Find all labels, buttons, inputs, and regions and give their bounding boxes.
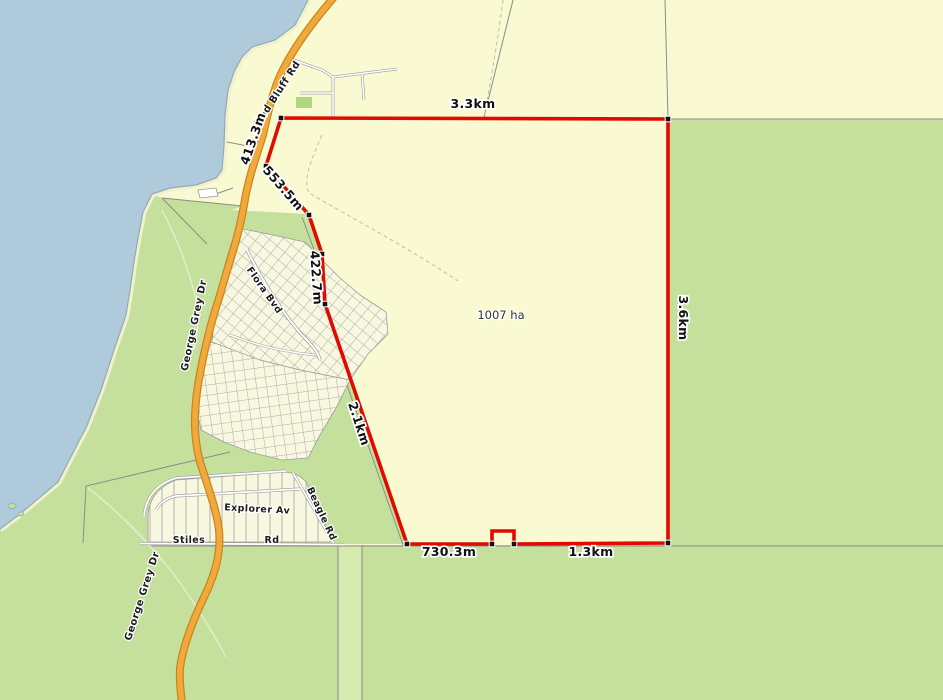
vertex-handle[interactable] bbox=[511, 541, 517, 547]
vertex-handle[interactable] bbox=[306, 212, 312, 218]
vertex-handle[interactable] bbox=[278, 115, 284, 121]
measurement-right-edge: 3.6km bbox=[676, 296, 691, 341]
islet bbox=[18, 512, 24, 516]
map-viewport[interactable]: Red Bluff Rd George Grey Dr George Grey … bbox=[0, 0, 943, 700]
measurement-bottom-right: 1.3km bbox=[569, 544, 614, 559]
measurement-bottom-left: 730.3m bbox=[422, 544, 476, 559]
parcel-area-label: 1007 ha bbox=[477, 308, 524, 322]
road-label-stiles: Stiles bbox=[173, 535, 205, 546]
road-label-stiles-rd: Rd bbox=[265, 535, 280, 546]
park-square bbox=[296, 97, 312, 108]
road-reserve-strip bbox=[338, 545, 362, 700]
carpark-structure bbox=[198, 188, 218, 198]
vertex-handle[interactable] bbox=[665, 116, 671, 122]
map-canvas: Red Bluff Rd George Grey Dr George Grey … bbox=[0, 0, 943, 700]
measurement-top-edge: 3.3km bbox=[451, 96, 496, 111]
vertex-handle[interactable] bbox=[404, 541, 410, 547]
vertex-handle[interactable] bbox=[665, 540, 671, 546]
vertex-handle[interactable] bbox=[489, 541, 495, 547]
islet bbox=[8, 504, 16, 509]
